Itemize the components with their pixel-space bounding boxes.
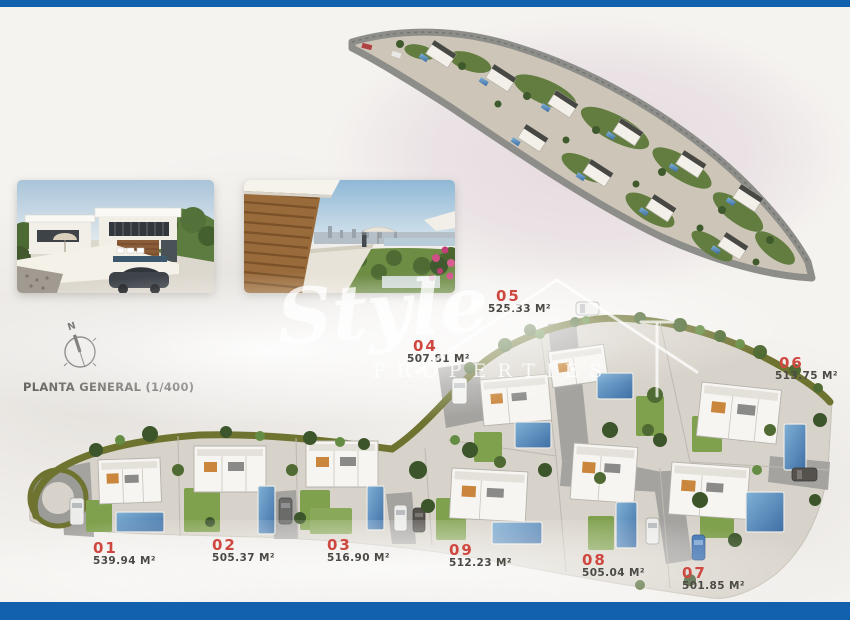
plot-label-08: 08 505.04 M² [582,552,645,579]
plot-label-04: 04 507.81 M² [407,338,470,365]
plot-area: 507.81 M² [407,354,470,366]
plot-label-05: 05 525.33 M² [488,288,551,315]
plot-label-09: 09 512.23 M² [449,542,512,569]
plot-area: 505.04 M² [582,568,645,580]
plot-area: 505.37 M² [212,553,275,565]
villa-exterior-photo [17,180,214,293]
plan-lawns [86,396,734,550]
compass-north-label: N [66,320,77,333]
aerial-development-render [0,0,850,620]
plot-area: 513.75 M² [775,371,838,383]
plan-title: PLANTA GENERAL (1/400) [23,380,194,394]
plot-label-02: 02 505.37 M² [212,537,275,564]
plot-label-03: 03 516.90 M² [327,537,390,564]
aerial-red-car [361,43,372,50]
plot-label-06: 06 513.75 M² [775,355,838,382]
plot-label-07: 07 501.85 M² [682,565,745,592]
brochure-page: N PLANTA GENERAL (1/400) [0,0,850,620]
aerial-villas [419,38,764,266]
plot-area: 525.33 M² [488,304,551,316]
plot-label-01: 01 539.94 M² [93,540,156,567]
plot-area: 516.90 M² [327,553,390,565]
site-plan-drawing [0,0,850,620]
bottom-border-bar [0,602,850,620]
plot-area: 539.94 M² [93,556,156,568]
plot-area: 501.85 M² [682,581,745,593]
plan-villas [98,344,806,548]
plot-area: 512.23 M² [449,558,512,570]
compass-rose: N [50,314,110,378]
top-border-bar [0,0,850,7]
terrace-view-photo [244,180,455,293]
